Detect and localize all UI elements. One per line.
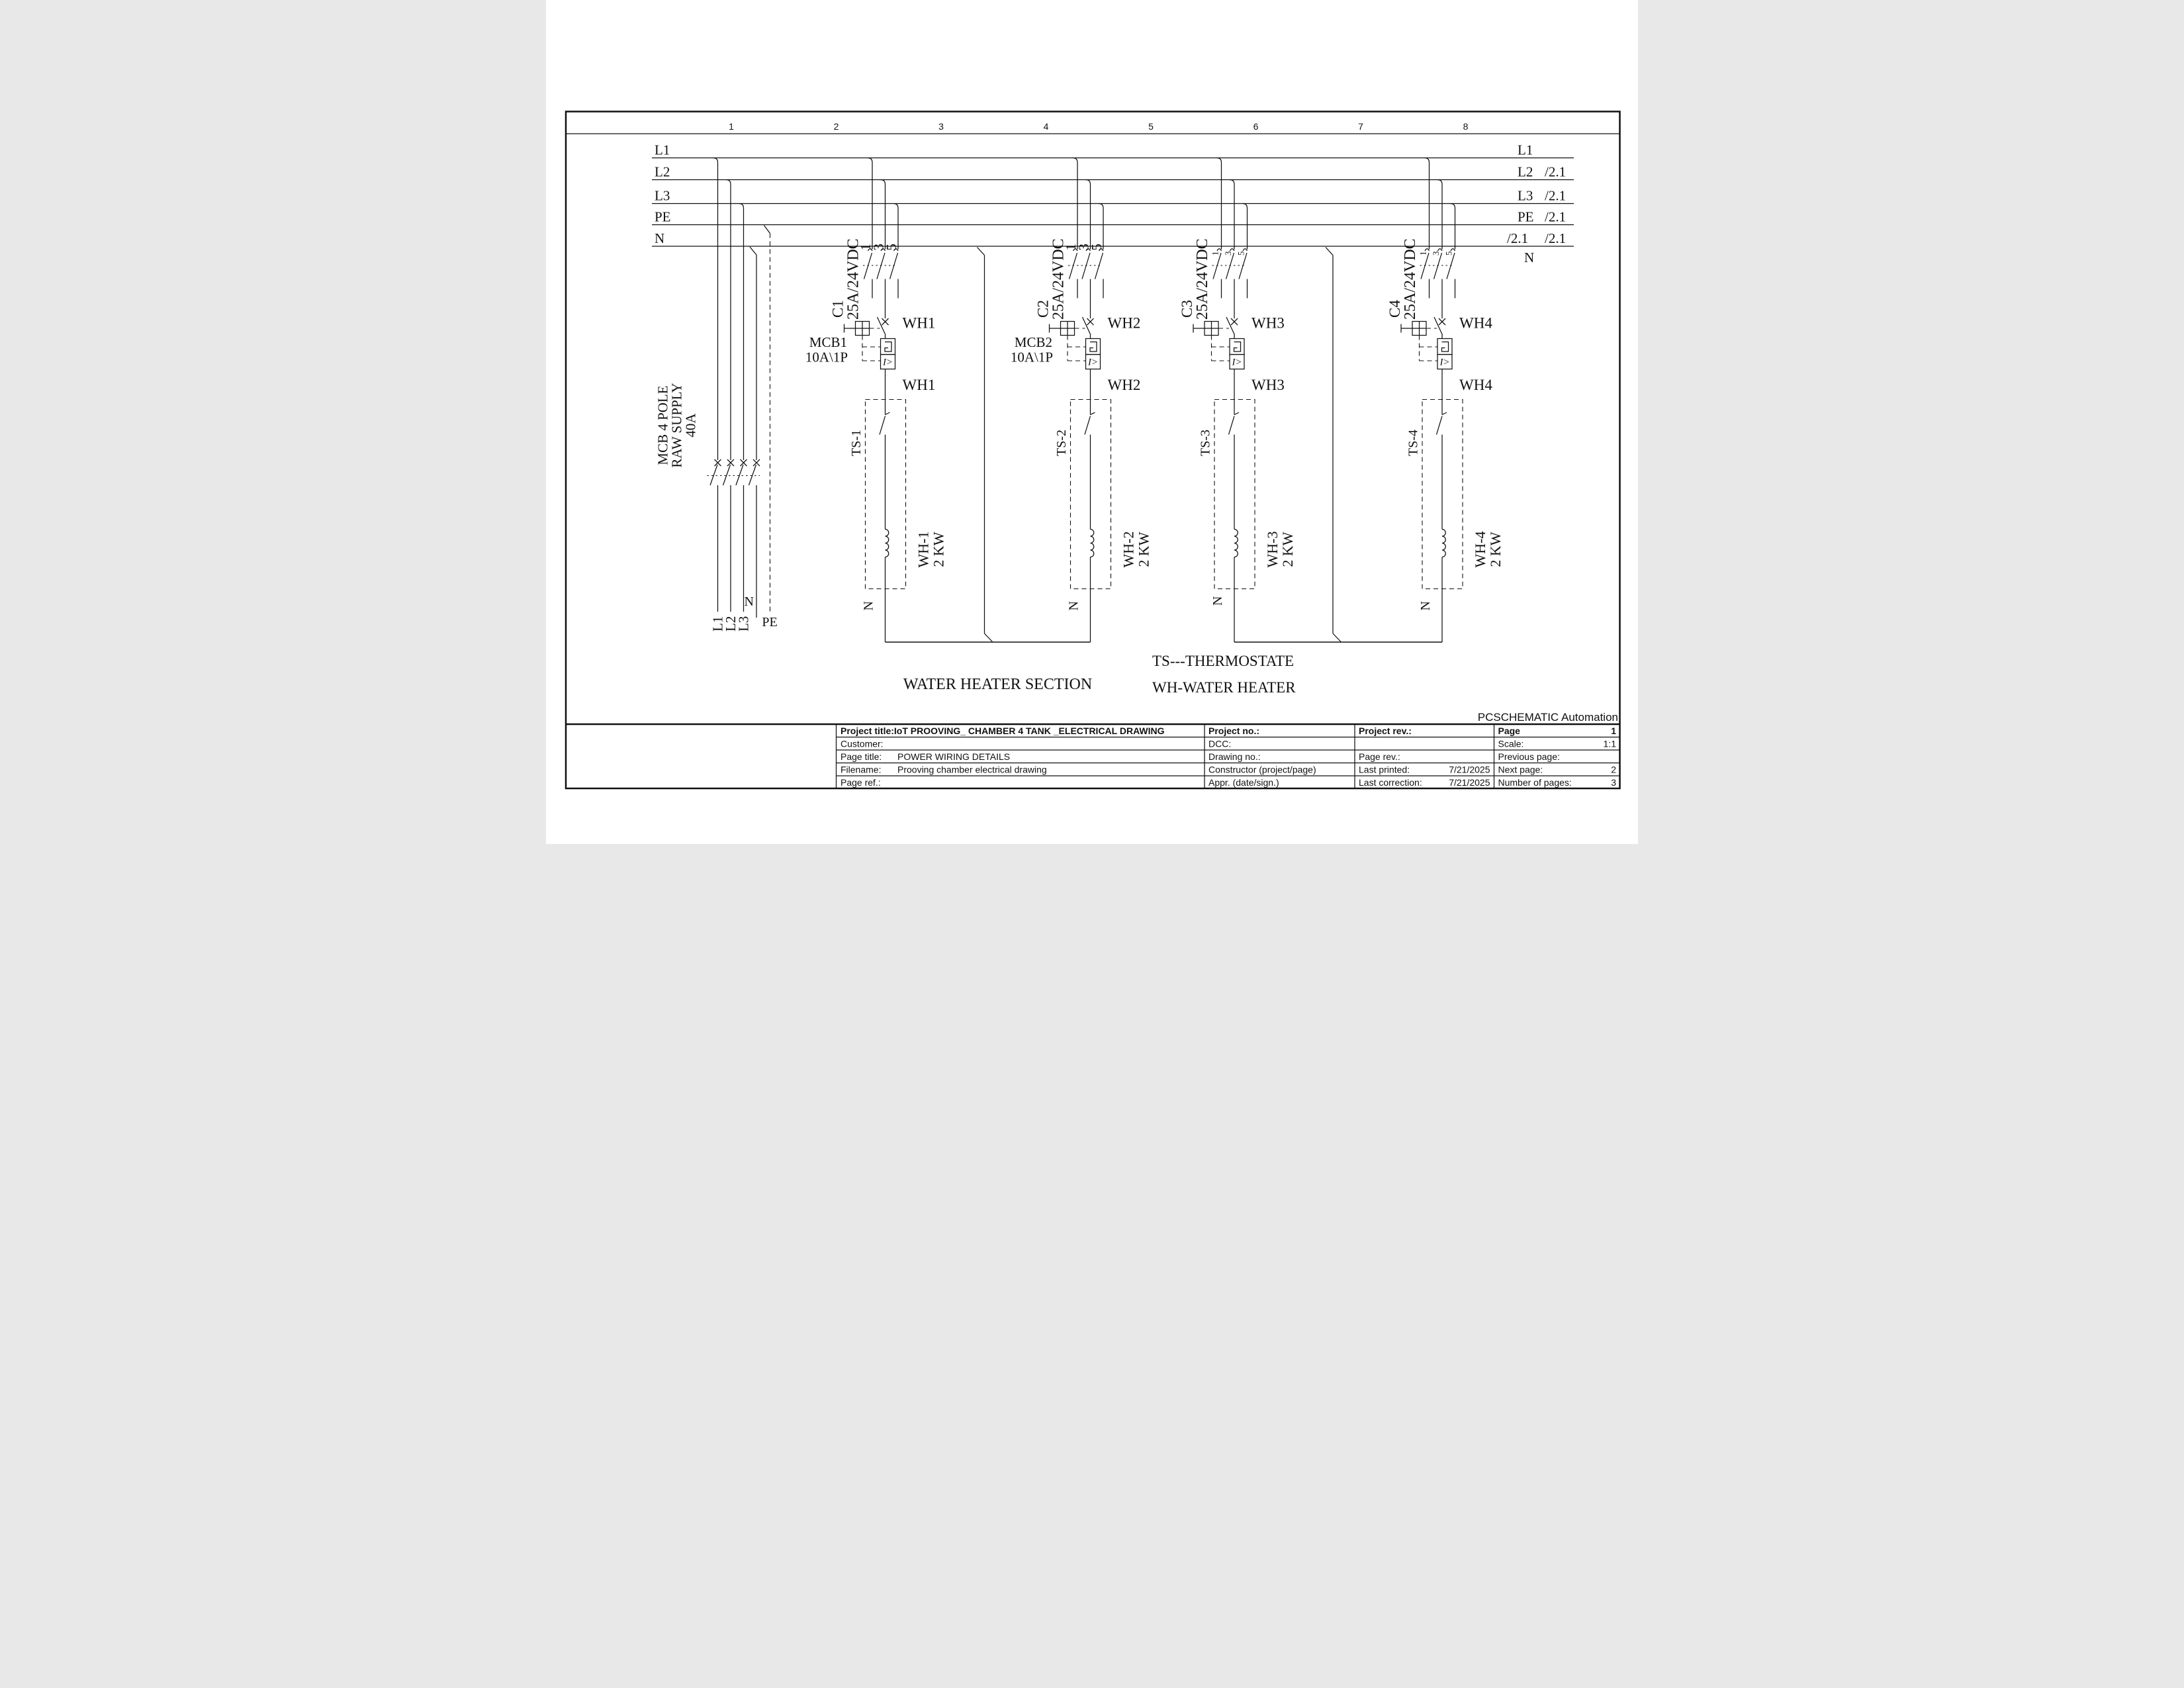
thermostat-switch — [1437, 369, 1447, 530]
power-buses: L1 L2 L3 PE N L1 L2 /2.1 L3 /2.1 PE /2.1… — [652, 142, 1574, 266]
supply-label-line1: MCB 4 POLE — [655, 385, 671, 465]
column-number: 8 — [1463, 121, 1469, 132]
thermostat: TS-2 — [1054, 369, 1111, 589]
pole-number: 3 — [1431, 252, 1441, 256]
supply-drop-l3 — [739, 204, 744, 461]
breaker-blades — [710, 465, 756, 485]
mcb-contact-x-icon — [1231, 318, 1238, 325]
contactor-blades — [1069, 253, 1103, 279]
contactor-outgoing — [1430, 279, 1455, 319]
mechanism-links — [1068, 328, 1086, 361]
captions: WATER HEATER SECTION TS---THERMOSTATE WH… — [903, 653, 1618, 724]
column-number: 1 — [729, 121, 734, 132]
thermal-element-box — [1086, 339, 1101, 355]
bus-label-l1: L1 — [655, 142, 670, 158]
contactor-labels: C4 25A/24VDC 1 3 5 — [1387, 238, 1454, 320]
thermal-element-box — [1230, 339, 1244, 355]
mechanism-links — [1212, 328, 1230, 361]
page-ref-label: Page ref.: — [841, 777, 881, 788]
position-indicator-lead — [844, 322, 870, 336]
pole-number: 3 — [1223, 252, 1233, 256]
bus-ref-n-a: /2.1 — [1507, 230, 1528, 246]
page-title-value: POWER WIRING DETAILS — [897, 751, 1010, 762]
heater-name: WH-1 — [915, 532, 932, 568]
thermostat-name: TS-3 — [1199, 430, 1213, 456]
thermal-element-icon — [1234, 342, 1241, 352]
schematic-canvas: 1 2 3 4 5 6 7 8 L1 L2 L3 PE N L1 L2 /2.1… — [546, 0, 1638, 844]
pole-number: 5 — [884, 244, 899, 251]
thermostat: TS-1 — [849, 369, 906, 589]
thermostat-switch — [1085, 369, 1095, 530]
bus-labels-left: L1 L2 L3 PE N — [655, 142, 671, 247]
pole-number: 5 — [1444, 252, 1454, 256]
thermostat-name: TS-2 — [1054, 430, 1069, 456]
num-pages-value: 3 — [1611, 777, 1616, 788]
overcurrent-trip-label: I> — [1231, 357, 1242, 368]
bus-ref-n-b: /2.1 — [1545, 230, 1566, 246]
last-correction-value: 7/21/2025 — [1449, 777, 1490, 788]
thermal-element-icon — [885, 342, 891, 352]
supply-labels: MCB 4 POLE RAW SUPPLY 40A L1 L2 L3 N PE — [655, 383, 778, 632]
bus-label-n-right: N — [1524, 250, 1534, 265]
contactor-name: C3 — [1179, 300, 1195, 318]
scale-value: 1:1 — [1604, 739, 1617, 749]
neutral-tag: N — [1418, 601, 1433, 610]
contactor-rating: 25A/24VDC — [1402, 238, 1419, 320]
project-no-label: Project no.: — [1208, 726, 1259, 736]
mcb-contact-x-icon — [1439, 318, 1445, 325]
next-page-value: 2 — [1611, 765, 1616, 775]
contactor-outgoing — [1077, 279, 1103, 319]
heater-power: 2 KW — [931, 532, 947, 567]
contactor-blades — [1421, 253, 1455, 279]
bus-label-pe-right: PE — [1518, 209, 1534, 225]
mechanism-links — [1420, 328, 1438, 361]
contact-x-icon — [741, 459, 747, 466]
thermostat: TS-4 — [1406, 369, 1463, 589]
supply-out-pe: PE — [762, 615, 777, 630]
drawing-no-label: Drawing no.: — [1208, 751, 1261, 762]
heater-coil-icon — [1442, 530, 1445, 557]
contactor-labels: C1 25A/24VDC 1 3 5 — [830, 238, 900, 320]
contactor-name: C4 — [1387, 300, 1403, 318]
column-number: 5 — [1148, 121, 1154, 132]
scale-label: Scale: — [1498, 739, 1524, 749]
neutral-drop-1 — [978, 248, 993, 642]
last-printed-value: 7/21/2025 — [1449, 765, 1490, 775]
page-value: 1 — [1611, 726, 1616, 736]
pole-number: 1 — [1210, 252, 1220, 256]
customer-label: Customer: — [841, 739, 884, 749]
device-tag-top: WH4 — [1459, 315, 1492, 332]
heater-labels: WH-3 2 KW N — [1210, 532, 1296, 606]
appr-label: Appr. (date/sign.) — [1208, 777, 1279, 788]
mcb-contact-x-icon — [882, 318, 889, 325]
column-number: 3 — [938, 121, 944, 132]
contact-x-icon — [753, 459, 760, 466]
neutral-tag: N — [1210, 596, 1225, 606]
pole-number: 1 — [1418, 252, 1428, 256]
column-number: 2 — [834, 121, 839, 132]
position-indicator-lead — [1401, 322, 1426, 336]
page-label: Page — [1498, 726, 1521, 736]
overcurrent-trip-label: I> — [1439, 357, 1449, 368]
thermal-element-box — [881, 339, 895, 355]
title-block: Project title:IoT PROOVING_ CHAMBER 4 TA… — [566, 724, 1620, 788]
pole-number: 5 — [1089, 244, 1105, 251]
title-block-text: Project title:IoT PROOVING_ CHAMBER 4 TA… — [841, 726, 1616, 788]
contactor-name: C2 — [1035, 300, 1052, 318]
heater-power: 2 KW — [1136, 532, 1152, 567]
position-indicator-lead — [1050, 322, 1075, 336]
bus-label-l2-right: L2 — [1518, 164, 1533, 180]
branch-circuit-3: C3 25A/24VDC 1 3 5 WH3 I> WH3 TS-3 WH-3 — [1179, 158, 1296, 643]
neutral-drop-2 — [1326, 248, 1341, 642]
branch-circuit-2: C2 25A/24VDC 1 3 5 WH2 I> MCB2 10A\1P WH… — [1011, 158, 1152, 643]
prev-page-label: Previous page: — [1498, 751, 1560, 762]
contactor-labels: C2 25A/24VDC 1 3 5 — [1035, 238, 1105, 320]
heater-coil-icon — [1234, 530, 1238, 557]
frame-border — [566, 112, 1620, 789]
heater-coil-icon — [1091, 530, 1094, 557]
page-rev-label: Page rev.: — [1359, 751, 1400, 762]
contactor-labels: C3 25A/24VDC 1 3 5 — [1179, 238, 1246, 320]
thermostat-name: TS-4 — [1406, 430, 1421, 456]
supply-label-line3: 40A — [683, 413, 699, 438]
thermostat-switch — [880, 369, 890, 530]
bus-label-l3-right: L3 — [1518, 188, 1533, 204]
mcb-name: MCB2 — [1015, 334, 1052, 350]
thermostat: TS-3 — [1199, 369, 1255, 589]
bus-ref-l3: /2.1 — [1545, 188, 1566, 204]
drawing-frame: 1 2 3 4 5 6 7 8 — [566, 112, 1620, 789]
heater-coil-icon — [886, 530, 889, 557]
overcurrent-trip-label: I> — [882, 357, 893, 368]
bus-label-l3: L3 — [655, 188, 670, 204]
num-pages-label: Number of pages: — [1498, 777, 1572, 788]
supply-label-line2: RAW SUPPLY — [669, 383, 685, 467]
last-printed-label: Last printed: — [1359, 765, 1410, 775]
neutral-drops — [886, 248, 1443, 643]
dcc-label: DCC: — [1208, 739, 1231, 749]
device-tag-mid: WH1 — [903, 377, 936, 393]
contactor-blades — [1213, 253, 1247, 279]
heater-name: WH-4 — [1472, 532, 1488, 568]
mcb-name: MCB1 — [809, 334, 847, 350]
column-number: 6 — [1253, 121, 1259, 132]
contactor-outgoing — [872, 279, 898, 319]
mcb-labels: MCB1 10A\1P — [805, 334, 848, 365]
column-numbers: 1 2 3 4 5 6 7 8 — [729, 121, 1469, 132]
mcb-rating: 10A\1P — [1011, 350, 1053, 365]
thermostat-switch — [1229, 369, 1240, 530]
mcb-rating: 10A\1P — [805, 350, 848, 365]
contactor-rating: 25A/24VDC — [1194, 238, 1211, 320]
supply-out-n: N — [745, 594, 754, 609]
heater-name: WH-2 — [1120, 532, 1137, 568]
supply-breaker-contacts — [707, 459, 760, 485]
contactor-outgoing — [1222, 279, 1248, 319]
constructor-label: Constructor (project/page) — [1208, 765, 1316, 775]
mcb-labels: MCB2 10A\1P — [1011, 334, 1053, 365]
bus-label-pe: PE — [655, 209, 671, 225]
project-title: Project title:IoT PROOVING_ CHAMBER 4 TA… — [841, 726, 1165, 736]
thermal-element-icon — [1090, 342, 1097, 352]
heater-labels: WH-2 2 KW N — [1067, 532, 1152, 611]
supply-drop-l2 — [726, 180, 731, 461]
contactor-name: C1 — [830, 300, 846, 318]
bus-label-l1-right: L1 — [1518, 142, 1533, 158]
heater-power: 2 KW — [1279, 532, 1296, 567]
bus-label-n: N — [655, 230, 664, 246]
page-title-label: Page title: — [841, 751, 882, 762]
device-tag-mid: WH3 — [1251, 377, 1285, 393]
legend-ts: TS---THERMOSTATE — [1152, 653, 1294, 669]
neutral-tag: N — [1067, 601, 1081, 610]
filename-value: Prooving chamber electrical drawing — [897, 765, 1047, 775]
thermal-element-icon — [1442, 342, 1449, 352]
mcb-contact-x-icon — [1087, 318, 1094, 325]
mcb-symbol: I> — [844, 317, 895, 369]
brand-text: PCSCHEMATIC Automation — [1478, 711, 1618, 724]
project-rev-label: Project rev.: — [1359, 726, 1412, 736]
overcurrent-trip-label: I> — [1087, 357, 1098, 368]
contactor-blades — [864, 253, 898, 279]
contact-x-icon — [715, 459, 721, 466]
legend-wh: WH-WATER HEATER — [1152, 679, 1296, 696]
neutral-tag: N — [862, 601, 876, 610]
column-number: 4 — [1044, 121, 1049, 132]
contact-x-icon — [727, 459, 734, 466]
last-correction-label: Last correction: — [1359, 777, 1422, 788]
next-page-label: Next page: — [1498, 765, 1543, 775]
branch-circuit-4: C4 25A/24VDC 1 3 5 WH4 I> WH4 TS-4 WH-4 — [1387, 158, 1504, 643]
bus-ref-pe: /2.1 — [1545, 209, 1566, 225]
supply-pe-tap-jog — [764, 226, 770, 234]
bus-label-l2: L2 — [655, 164, 670, 180]
schematic-sheet: 1 2 3 4 5 6 7 8 L1 L2 L3 PE N L1 L2 /2.1… — [546, 0, 1638, 844]
mcb-symbol: I> — [1193, 317, 1244, 369]
heater-name: WH-3 — [1264, 532, 1281, 568]
mcb-symbol: I> — [1401, 317, 1452, 369]
device-tag-mid: WH4 — [1459, 377, 1492, 393]
filename-label: Filename: — [841, 765, 881, 775]
mcb-symbol: I> — [1050, 317, 1101, 369]
thermostat-name: TS-1 — [849, 430, 864, 456]
device-tag-top: WH1 — [903, 315, 936, 332]
heater-power: 2 KW — [1487, 532, 1504, 567]
device-tag-top: WH3 — [1251, 315, 1285, 332]
heater-labels: WH-1 2 KW N — [862, 532, 947, 611]
heater-labels: WH-4 2 KW N — [1418, 532, 1504, 611]
pole-number: 5 — [1236, 252, 1246, 256]
bus-ref-l2: /2.1 — [1545, 164, 1566, 180]
position-indicator-lead — [1193, 322, 1218, 336]
raw-supply-mcb: MCB 4 POLE RAW SUPPLY 40A L1 L2 L3 N PE — [655, 158, 778, 632]
supply-out-l3: L3 — [736, 616, 752, 632]
column-number: 7 — [1358, 121, 1363, 132]
supply-drop-n — [750, 247, 756, 460]
device-tag-mid: WH2 — [1108, 377, 1141, 393]
device-tag-top: WH2 — [1108, 315, 1141, 332]
mechanism-links — [862, 328, 881, 361]
thermal-element-box — [1437, 339, 1452, 355]
branch-circuit-1: C1 25A/24VDC 1 3 5 WH1 I> MCB1 10A\1P WH… — [805, 158, 947, 643]
section-caption: WATER HEATER SECTION — [903, 676, 1092, 693]
